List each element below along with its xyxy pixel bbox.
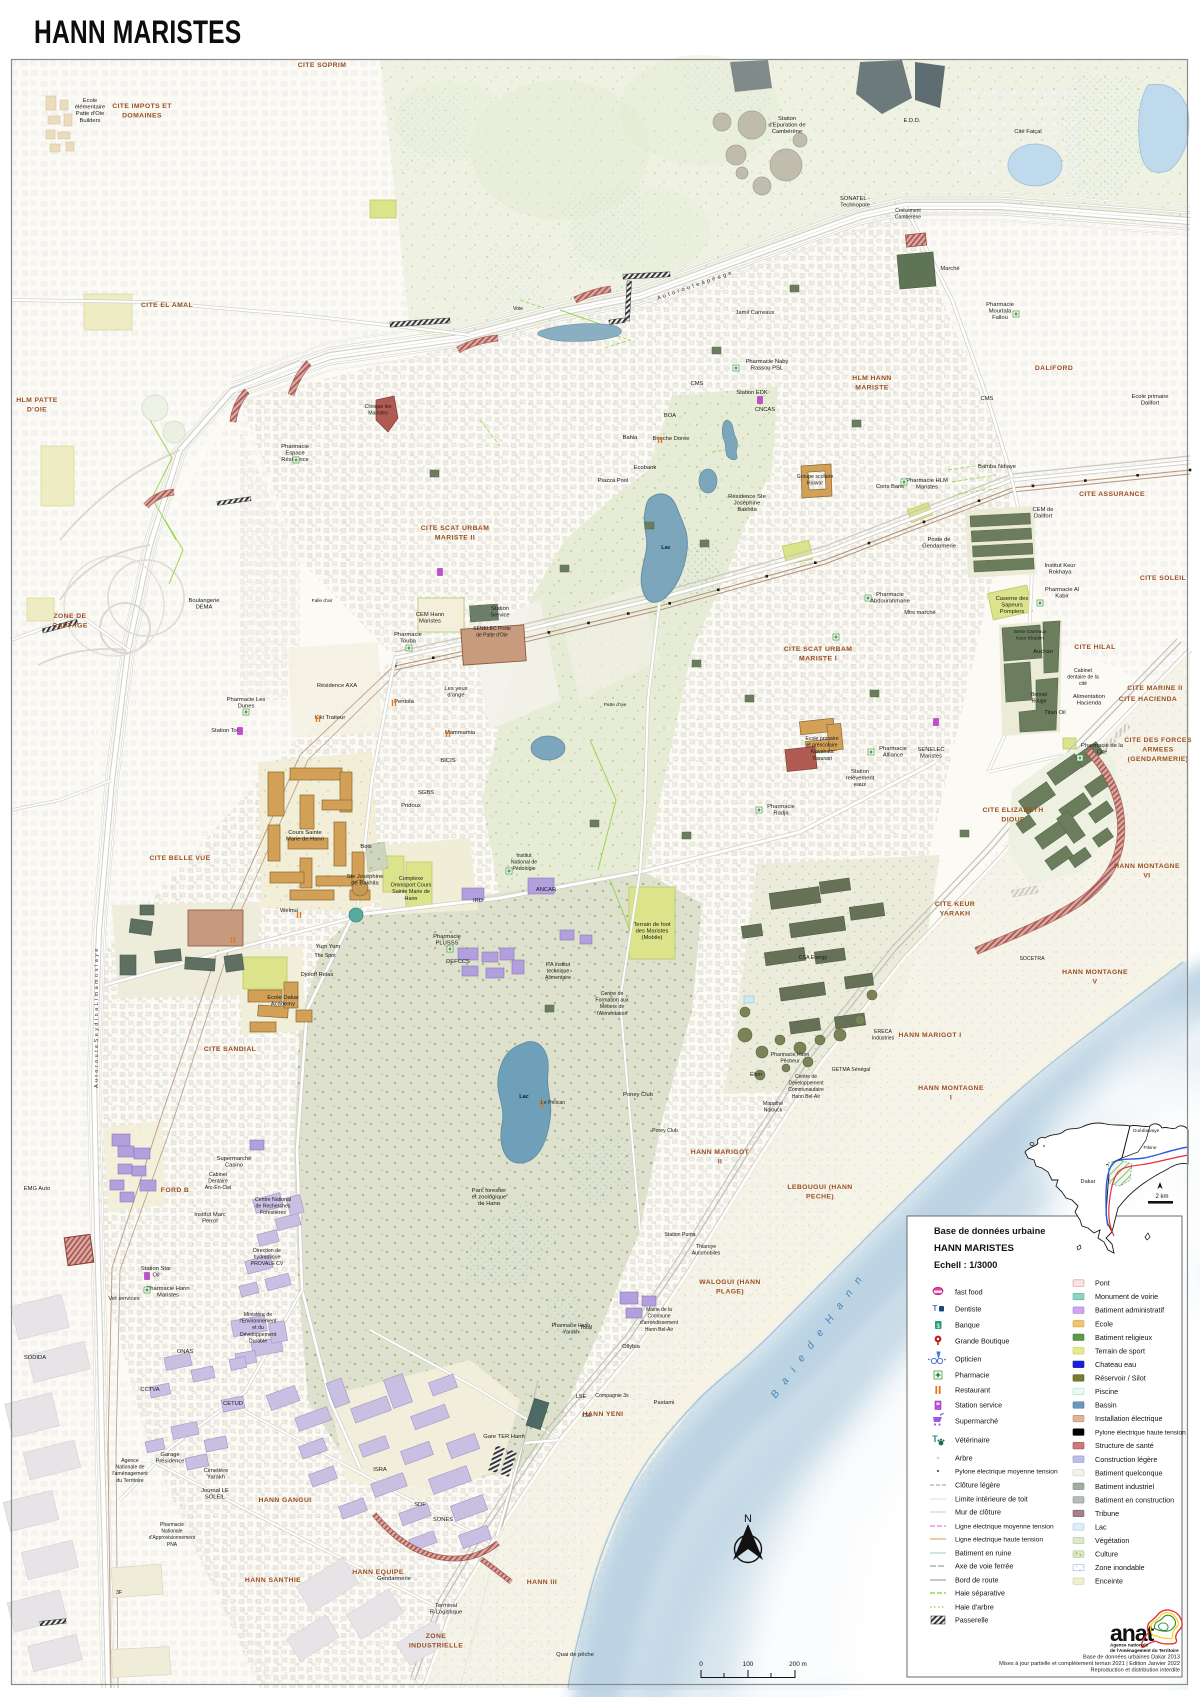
svg-text:Haie séparative: Haie séparative	[955, 1588, 1005, 1597]
svg-text:Pharmacie Naby: Pharmacie Naby	[746, 359, 789, 365]
svg-text:LSE: LSE	[582, 1413, 592, 1419]
svg-text:WALOGUI (HANN: WALOGUI (HANN	[699, 1279, 760, 1286]
svg-text:Terrain de foot: Terrain de foot	[633, 922, 670, 928]
svg-text:Dakar: Dakar	[1081, 1179, 1096, 1185]
svg-text:Service: Service	[490, 613, 509, 619]
svg-text:MARISTE: MARISTE	[855, 385, 888, 392]
svg-text:T: T	[933, 1304, 938, 1313]
svg-text:Sainte Marie de: Sainte Marie de	[392, 889, 430, 895]
svg-text:Bamba Ndiaye: Bamba Ndiaye	[978, 464, 1016, 470]
svg-text:Auchan: Auchan	[1033, 649, 1053, 655]
svg-text:MARISTE II: MARISTE II	[435, 535, 475, 542]
svg-text:Serre Carreaux: Serre Carreaux	[1014, 629, 1047, 635]
svg-text:Clinique les: Clinique les	[365, 404, 392, 410]
svg-text:T: T	[932, 1434, 938, 1444]
svg-text:BICIS: BICIS	[440, 758, 455, 764]
svg-text:Automobiles: Automobiles	[692, 1251, 721, 1257]
svg-text:Station service: Station service	[955, 1401, 1002, 1410]
svg-text:Opticien: Opticien	[955, 1355, 981, 1364]
svg-text:Réservoir / Silot: Réservoir / Silot	[1095, 1373, 1146, 1382]
svg-text:Mairie de la: Mairie de la	[646, 1307, 672, 1313]
svg-text:Patte d'Oie: Patte d'Oie	[76, 111, 105, 117]
svg-text:200 m: 200 m	[789, 1661, 807, 1668]
svg-text:ISRA: ISRA	[373, 1467, 387, 1473]
svg-text:SDF: SDF	[414, 1502, 426, 1508]
svg-text:FORD B: FORD B	[161, 1187, 189, 1194]
svg-text:Station: Station	[851, 769, 869, 775]
svg-text:CITE KEUR: CITE KEUR	[935, 901, 975, 908]
svg-text:Clôture légère: Clôture légère	[955, 1480, 1000, 1489]
svg-text:Sapeurs: Sapeurs	[1001, 603, 1023, 609]
svg-text:DEMA: DEMA	[196, 605, 213, 611]
svg-text:cité: cité	[1079, 681, 1087, 687]
svg-text:Poste de: Poste de	[928, 537, 951, 543]
svg-text:Hann Bel-Air: Hann Bel-Air	[645, 1327, 674, 1333]
svg-text:CETUD: CETUD	[223, 1401, 243, 1407]
svg-text:Mourtala: Mourtala	[989, 309, 1012, 315]
svg-text:Bord de route: Bord de route	[955, 1575, 999, 1584]
svg-text:Hann Bel-Air: Hann Bel-Air	[792, 1094, 821, 1100]
svg-text:Pikine: Pikine	[1143, 1145, 1156, 1151]
svg-text:Culture: Culture	[1095, 1550, 1118, 1559]
svg-text:Bakhita: Bakhita	[737, 507, 757, 513]
svg-text:Elton: Elton	[750, 1072, 762, 1078]
svg-text:technique: technique	[547, 969, 570, 975]
svg-text:Cité: Cité	[1097, 750, 1107, 756]
svg-text:Pharmacie: Pharmacie	[281, 444, 309, 450]
svg-text:Journal LE: Journal LE	[201, 1488, 229, 1494]
svg-text:Développement: Développement	[240, 1332, 277, 1338]
svg-text:Pharmacie HLM: Pharmacie HLM	[906, 478, 948, 484]
svg-text:Gare TER Hann: Gare TER Hann	[483, 1434, 524, 1440]
svg-text:Cabinet: Cabinet	[209, 1172, 227, 1178]
svg-text:LEBOUGUI (HANN: LEBOUGUI (HANN	[787, 1184, 852, 1191]
svg-text:Alimentation: Alimentation	[1073, 694, 1105, 700]
svg-text:Kawabata: Kawabata	[810, 749, 833, 755]
svg-text:Agence: Agence	[121, 1458, 139, 1464]
svg-text:Arc-En-Ciel: Arc-En-Ciel	[205, 1185, 232, 1191]
svg-text:BOA: BOA	[664, 413, 676, 419]
svg-text:de l'Aménagement du Territoire: de l'Aménagement du Territoire	[1110, 1648, 1179, 1653]
svg-text:Hann: Hann	[405, 896, 418, 902]
svg-text:E.D.D.: E.D.D.	[903, 118, 920, 124]
svg-text:Supermarché: Supermarché	[955, 1417, 998, 1426]
svg-text:Maristes: Maristes	[157, 1293, 179, 1299]
svg-text:A u t o r o u t e S e y d i: A u t o r o u t e S e y d i n a L i m a …	[94, 948, 100, 1088]
svg-text:Djoloff Relax: Djoloff Relax	[301, 972, 334, 978]
svg-text:Bois: Bois	[360, 844, 371, 850]
svg-text:Présidence: Présidence	[155, 1459, 184, 1465]
svg-text:Nationale de: Nationale de	[115, 1465, 144, 1471]
svg-text:Limite intérieure de toit: Limite intérieure de toit	[955, 1494, 1028, 1503]
svg-text:SOLEIL: SOLEIL	[205, 1495, 226, 1501]
svg-text:Perrot: Perrot	[202, 1219, 218, 1225]
svg-text:DOMAINES: DOMAINES	[122, 113, 162, 120]
svg-text:l'aménagement: l'aménagement	[112, 1471, 148, 1477]
svg-text:Mur de clôture: Mur de clôture	[955, 1507, 1001, 1516]
svg-text:Institut: Institut	[516, 853, 532, 859]
svg-text:Dentiste: Dentiste	[955, 1305, 981, 1314]
svg-text:relèvement: relèvement	[846, 776, 875, 782]
svg-text:Guédiawaye: Guédiawaye	[1133, 1128, 1160, 1134]
svg-text:DIOUF: DIOUF	[1001, 817, 1024, 824]
svg-text:Lac: Lac	[519, 1094, 528, 1100]
svg-text:Agence nationale: Agence nationale	[1110, 1643, 1148, 1648]
svg-text:Marché: Marché	[940, 266, 959, 272]
svg-text:Pharmacie: Pharmacie	[394, 632, 422, 638]
svg-text:Bonnet: Bonnet	[1031, 692, 1047, 698]
svg-text:Ministère de: Ministère de	[244, 1312, 272, 1318]
svg-text:Métiers de: Métiers de	[600, 1004, 624, 1010]
svg-text:Centre de: Centre de	[795, 1074, 817, 1080]
svg-text:Builders: Builders	[80, 118, 101, 124]
svg-text:Les yeux: Les yeux	[444, 686, 467, 692]
svg-text:SOCETRA: SOCETRA	[1019, 956, 1045, 962]
svg-text:CITE MARINE II: CITE MARINE II	[1127, 685, 1182, 692]
svg-text:HANN SANTHIE: HANN SANTHIE	[245, 1577, 301, 1584]
svg-text:CITE SANDIAL: CITE SANDIAL	[204, 1046, 256, 1053]
svg-text:0: 0	[699, 1661, 703, 1668]
svg-text:Coris Bank: Coris Bank	[876, 484, 904, 490]
svg-text:Quai de pêche: Quai de pêche	[556, 1652, 594, 1658]
svg-text:Pastami: Pastami	[654, 1400, 675, 1406]
svg-text:Ecole: Ecole	[83, 98, 98, 104]
svg-text:2 km: 2 km	[1155, 1194, 1168, 1200]
svg-text:Restaurant: Restaurant	[955, 1386, 990, 1395]
svg-text:Batiment en ruine: Batiment en ruine	[955, 1548, 1011, 1557]
svg-text:Ndiouck: Ndiouck	[764, 1108, 783, 1114]
svg-text:Groupe scolaire: Groupe scolaire	[797, 474, 834, 480]
svg-text:Yarakh: Yarakh	[207, 1475, 225, 1481]
svg-text:CITE SCAT URBAM: CITE SCAT URBAM	[421, 525, 490, 532]
svg-text:ZONE DE: ZONE DE	[53, 613, 86, 620]
svg-text:Batiment quelconque: Batiment quelconque	[1095, 1468, 1163, 1477]
svg-text:HANN EQUIPE: HANN EQUIPE	[352, 1569, 404, 1576]
svg-text:Cambérène: Cambérène	[772, 129, 802, 135]
svg-text:Résidence AXA: Résidence AXA	[317, 683, 357, 689]
svg-text:CEM de: CEM de	[1033, 507, 1054, 513]
svg-text:Institut Keur: Institut Keur	[1045, 563, 1076, 569]
svg-text:Structure de santé: Structure de santé	[1095, 1441, 1154, 1450]
svg-text:Vétérinaire: Vétérinaire	[955, 1436, 990, 1445]
svg-text:Halwar: Halwar	[807, 481, 823, 487]
svg-text:Pharmacie: Pharmacie	[876, 592, 904, 598]
svg-text:Ligne électrique haute tension: Ligne électrique haute tension	[955, 1536, 1043, 1543]
svg-text:HANN MARIGOT I: HANN MARIGOT I	[899, 1032, 962, 1039]
svg-text:Communautaire: Communautaire	[788, 1087, 824, 1093]
svg-text:des Maristes: des Maristes	[636, 929, 669, 935]
svg-text:Rouge: Rouge	[1032, 699, 1047, 705]
svg-text:Végétation: Végétation	[1095, 1536, 1129, 1545]
svg-text:Station: Station	[778, 116, 796, 122]
svg-text:Station: Station	[491, 606, 509, 612]
svg-text:Echell : 1/3000: Echell : 1/3000	[934, 1260, 997, 1270]
svg-text:N: N	[744, 1513, 752, 1525]
svg-text:PLUSSS: PLUSSS	[436, 941, 459, 947]
svg-text:EMG Auto: EMG Auto	[24, 1186, 50, 1192]
svg-text:CITE HACIENDA: CITE HACIENDA	[1119, 696, 1177, 703]
svg-text:Tribune: Tribune	[1095, 1509, 1119, 1518]
svg-text:CMS: CMS	[981, 396, 994, 402]
svg-text:Thiaroye: Thiaroye	[696, 1244, 716, 1250]
svg-text:de Patte d'Oie: de Patte d'Oie	[476, 633, 508, 639]
svg-text:ZONE: ZONE	[426, 1633, 447, 1640]
svg-text:Alliance: Alliance	[883, 753, 903, 759]
svg-text:Fallou: Fallou	[992, 315, 1008, 321]
svg-text:Complexe: Complexe	[399, 876, 423, 882]
svg-text:Batiment industriel: Batiment industriel	[1095, 1482, 1155, 1491]
svg-text:Ecole Dakar: Ecole Dakar	[267, 995, 299, 1001]
svg-text:d'ange: d'ange	[447, 693, 464, 699]
svg-text:HANN MONTAGNE: HANN MONTAGNE	[1062, 969, 1128, 976]
svg-text:Omnisport Cours: Omnisport Cours	[391, 883, 432, 889]
svg-text:Bassin: Bassin	[1095, 1401, 1117, 1410]
svg-text:Batiment en construction: Batiment en construction	[1095, 1495, 1174, 1504]
svg-text:PNA: PNA	[167, 1542, 178, 1548]
svg-text:HANN MONTAGNE: HANN MONTAGNE	[1114, 863, 1180, 870]
svg-text:CITE SOLEIL: CITE SOLEIL	[1140, 575, 1186, 582]
svg-text:Rokhaya: Rokhaya	[1049, 570, 1073, 576]
svg-text:R-Logistique: R-Logistique	[430, 1610, 463, 1616]
svg-text:Maristes: Maristes	[368, 411, 388, 417]
svg-text:Joséphine: Joséphine	[734, 501, 760, 507]
svg-text:CITE BELLE VUE: CITE BELLE VUE	[149, 855, 210, 862]
svg-text:SGBS: SGBS	[418, 790, 434, 796]
svg-text:Pharmacie Hann: Pharmacie Hann	[552, 1323, 591, 1329]
svg-text:I: I	[950, 1095, 952, 1102]
svg-text:du Territoire: du Territoire	[116, 1478, 143, 1484]
svg-text:Construction légère: Construction légère	[1095, 1455, 1157, 1464]
svg-text:Direction de: Direction de	[253, 1248, 281, 1254]
svg-text:II: II	[718, 1159, 723, 1166]
svg-text:l'Alimentation: l'Alimentation	[597, 1011, 628, 1017]
svg-text:CMS: CMS	[691, 381, 704, 387]
svg-text:et zoologique: et zoologique	[472, 1195, 507, 1201]
svg-text:Terrain de sport: Terrain de sport	[1095, 1346, 1145, 1355]
svg-text:SONATEL -: SONATEL -	[840, 196, 870, 202]
svg-text:HLM HANN: HLM HANN	[852, 375, 891, 382]
svg-text:hydraulique: hydraulique	[254, 1255, 281, 1261]
svg-text:Maristes: Maristes	[916, 485, 938, 491]
svg-text:V: V	[1093, 979, 1098, 986]
svg-text:Résidence Ste: Résidence Ste	[728, 494, 766, 500]
svg-text:Station Puma: Station Puma	[664, 1232, 695, 1238]
svg-text:SODIDA: SODIDA	[24, 1355, 46, 1361]
svg-text:PECHE): PECHE)	[806, 1194, 834, 1201]
svg-text:CITE SOPRIM: CITE SOPRIM	[298, 62, 347, 69]
svg-text:Dalifort: Dalifort	[1034, 514, 1053, 520]
svg-text:The Spot: The Spot	[314, 953, 336, 959]
svg-text:Grande Boutique: Grande Boutique	[955, 1337, 1009, 1346]
svg-text:Piazza Pool: Piazza Pool	[598, 478, 629, 484]
svg-text:Pylone électrique haute tensio: Pylone électrique haute tension	[1095, 1430, 1186, 1437]
svg-text:Mini marché: Mini marché	[904, 610, 936, 616]
svg-text:Batiment religieux: Batiment religieux	[1095, 1333, 1153, 1342]
svg-text:de Bakhita: de Bakhita	[351, 881, 379, 887]
svg-text:IRD: IRD	[473, 898, 483, 904]
svg-text:Bahia: Bahia	[623, 435, 639, 441]
svg-text:Pêcheur: Pêcheur	[780, 1059, 800, 1065]
svg-text:Oil: Oil	[152, 1273, 159, 1279]
svg-text:Croisement: Croisement	[895, 208, 921, 214]
svg-text:ITA Institut: ITA Institut	[546, 962, 571, 968]
svg-text:Vet services: Vet services	[108, 1296, 139, 1302]
svg-text:Voie: Voie	[513, 306, 523, 312]
svg-text:Ligne électrique moyenne tensi: Ligne électrique moyenne tension	[955, 1523, 1054, 1530]
svg-text:Caserne des: Caserne des	[996, 596, 1029, 602]
svg-text:Batiment administratif: Batiment administratif	[1095, 1306, 1164, 1315]
svg-text:CITE SCAT URBAM: CITE SCAT URBAM	[784, 646, 853, 653]
svg-text:D'OIE: D'OIE	[27, 407, 47, 414]
svg-text:Dentaire: Dentaire	[208, 1179, 228, 1185]
svg-text:Lac: Lac	[1095, 1523, 1107, 1532]
svg-text:de Hann: de Hann	[478, 1201, 500, 1207]
svg-text:Lac: Lac	[661, 545, 670, 551]
svg-text:CITE DES FORCES: CITE DES FORCES	[1124, 737, 1192, 744]
svg-text:Keur Khadim: Keur Khadim	[1016, 636, 1044, 642]
svg-text:Abdourahmane: Abdourahmane	[870, 599, 910, 605]
svg-text:CITE IMPOTS ET: CITE IMPOTS ET	[112, 103, 172, 110]
svg-text:Pharmacie Les: Pharmacie Les	[227, 697, 266, 703]
svg-text:HANN III: HANN III	[527, 1579, 557, 1586]
svg-text:SENELEC: SENELEC	[917, 747, 944, 753]
svg-text:Ollybia: Ollybia	[622, 1344, 640, 1350]
svg-text:Pharmacie Hann: Pharmacie Hann	[146, 1286, 189, 1292]
svg-text:Pharmacie Hann: Pharmacie Hann	[771, 1052, 810, 1058]
svg-text:Boulangerie: Boulangerie	[189, 598, 220, 604]
svg-text:Yum Yum: Yum Yum	[316, 944, 341, 950]
svg-text:Ecole primaire: Ecole primaire	[1131, 394, 1168, 400]
svg-text:Technopole: Technopole	[840, 203, 870, 209]
svg-text:Marie de Hann: Marie de Hann	[286, 837, 324, 843]
svg-text:HANN MONTAGNE: HANN MONTAGNE	[918, 1085, 984, 1092]
svg-text:Falle d'air: Falle d'air	[312, 598, 333, 604]
svg-text:Pharmacie de la: Pharmacie de la	[1081, 743, 1124, 749]
svg-text:ERECA: ERECA	[874, 1029, 892, 1035]
svg-text:Station EDK: Station EDK	[736, 390, 768, 396]
svg-text:Nationale: Nationale	[161, 1529, 182, 1535]
svg-text:Garage: Garage	[160, 1452, 179, 1458]
svg-text:Kabir: Kabir	[1055, 594, 1069, 600]
svg-text:Pharmacie: Pharmacie	[160, 1522, 184, 1528]
svg-text:Welma: Welma	[280, 908, 299, 914]
svg-text:Industries: Industries	[872, 1036, 895, 1042]
svg-text:Pharmacie: Pharmacie	[955, 1371, 989, 1380]
svg-text:INDUSTRIELLE: INDUSTRIELLE	[409, 1643, 463, 1650]
svg-text:Pédologie: Pédologie	[512, 866, 535, 872]
svg-text:Reproduction et distribution i: Reproduction et distribution interdite	[1090, 1668, 1180, 1674]
svg-text:Ecole primaire: Ecole primaire	[805, 736, 838, 742]
svg-text:Base de données urbaines Dakar: Base de données urbaines Dakar 2013	[1083, 1655, 1180, 1661]
svg-text:Station Star: Station Star	[141, 1266, 171, 1272]
svg-text:PROVALE CV: PROVALE CV	[251, 1261, 284, 1267]
svg-text:GETMA Sénégal: GETMA Sénégal	[832, 1067, 871, 1073]
svg-text:Pharmacie: Pharmacie	[986, 302, 1014, 308]
svg-text:Dunes: Dunes	[238, 704, 255, 710]
svg-text:Poney Club: Poney Club	[623, 1092, 653, 1098]
svg-text:ANCAR: ANCAR	[536, 887, 556, 893]
svg-text:Banque: Banque	[955, 1321, 980, 1330]
svg-text:100: 100	[743, 1661, 754, 1668]
svg-text:Terminal: Terminal	[435, 1603, 457, 1609]
svg-text:Institut Marc: Institut Marc	[194, 1212, 226, 1218]
svg-text:Yasunari: Yasunari	[812, 756, 832, 762]
svg-text:Mises à jour partielle et comp: Mises à jour partielle et complètement t…	[999, 1661, 1180, 1667]
svg-text:Ecobank: Ecobank	[634, 465, 657, 471]
svg-text:Pharmacie: Pharmacie	[767, 804, 795, 810]
svg-text:Hacienda: Hacienda	[1077, 701, 1102, 707]
svg-text:HLM PATTE: HLM PATTE	[16, 397, 58, 404]
svg-text:CSA Energy: CSA Energy	[799, 955, 828, 961]
svg-text:Gendarmerie: Gendarmerie	[922, 544, 956, 550]
svg-text:élémentaire: élémentaire	[75, 105, 105, 111]
svg-text:Parc forestier: Parc forestier	[472, 1188, 507, 1194]
svg-text:Supermarché: Supermarché	[217, 1156, 252, 1162]
svg-text:HANN MARISTES: HANN MARISTES	[934, 1243, 1015, 1254]
svg-text:Centre National: Centre National	[255, 1197, 291, 1203]
svg-text:eaux: eaux	[854, 782, 867, 788]
svg-text:Ste Joséphine: Ste Joséphine	[347, 874, 384, 880]
svg-text:CITE EL AMAL: CITE EL AMAL	[141, 302, 193, 309]
svg-text:dentaire de la: dentaire de la	[1067, 675, 1099, 681]
svg-text:Haie d'arbre: Haie d'arbre	[955, 1602, 994, 1611]
svg-text:Espace: Espace	[285, 451, 304, 457]
svg-text:(GENDARMERIE): (GENDARMERIE)	[1128, 756, 1189, 763]
svg-text:Pont: Pont	[1095, 1279, 1110, 1288]
svg-text:Pentola: Pentola	[394, 699, 414, 705]
svg-text:Pylone électrique moyenne tens: Pylone électrique moyenne tension	[955, 1468, 1058, 1475]
svg-text:CITE ASSURANCE: CITE ASSURANCE	[1079, 491, 1145, 498]
svg-text:Titan Oil: Titan Oil	[1044, 710, 1065, 716]
svg-text:Base de données urbaine: Base de données urbaine	[934, 1226, 1045, 1236]
svg-text:fast food: fast food	[955, 1288, 983, 1297]
svg-text:Monument de voirie: Monument de voirie	[1095, 1292, 1158, 1301]
svg-text:SENELEC Poste: SENELEC Poste	[473, 626, 511, 632]
svg-text:Passerelle: Passerelle	[955, 1615, 989, 1624]
svg-text:CCTVA: CCTVA	[140, 1387, 159, 1393]
svg-text:Academy: Academy	[271, 1002, 295, 1008]
svg-text:CAPTAGE: CAPTAGE	[52, 623, 88, 630]
svg-text:et préscolaire: et préscolaire	[806, 743, 837, 749]
svg-text:Mapathé: Mapathé	[763, 1101, 783, 1107]
svg-text:Chateau eau: Chateau eau	[1095, 1360, 1136, 1369]
svg-text:Le Pélican: Le Pélican	[541, 1100, 565, 1106]
svg-text:Cabinet: Cabinet	[1074, 668, 1092, 674]
svg-text:Jamil Carreaux: Jamil Carreaux	[736, 310, 775, 316]
svg-text:d'Approvisionnement: d'Approvisionnement	[149, 1535, 196, 1541]
svg-text:HANN GANGUI: HANN GANGUI	[258, 1497, 311, 1504]
svg-text:Rassou PSL: Rassou PSL	[751, 366, 784, 372]
svg-text:ARMEES: ARMEES	[1142, 747, 1174, 754]
svg-text:CITE ELIZABETH: CITE ELIZABETH	[982, 807, 1043, 814]
svg-text:3F: 3F	[116, 1590, 122, 1596]
svg-text:CEM Hann: CEM Hann	[416, 612, 444, 618]
svg-text:LSE: LSE	[576, 1394, 587, 1400]
svg-text:Zone inondable: Zone inondable	[1095, 1563, 1145, 1572]
svg-text:National de: National de	[511, 860, 537, 866]
svg-text:Pridoux: Pridoux	[401, 803, 421, 809]
svg-text:Développement: Développement	[788, 1081, 824, 1087]
svg-text:Yarakh: Yarakh	[563, 1330, 579, 1336]
svg-text:Maristes: Maristes	[920, 754, 942, 760]
svg-text:Durable: Durable	[249, 1338, 267, 1344]
svg-text:de Recherches: de Recherches	[256, 1204, 291, 1210]
svg-text:VI: VI	[1143, 873, 1150, 880]
svg-text:CITE HILAL: CITE HILAL	[1074, 644, 1115, 651]
svg-text:MARISTE I: MARISTE I	[799, 656, 837, 663]
svg-text:d'arrondissement: d'arrondissement	[640, 1320, 679, 1326]
svg-text:Commune: Commune	[647, 1314, 670, 1320]
